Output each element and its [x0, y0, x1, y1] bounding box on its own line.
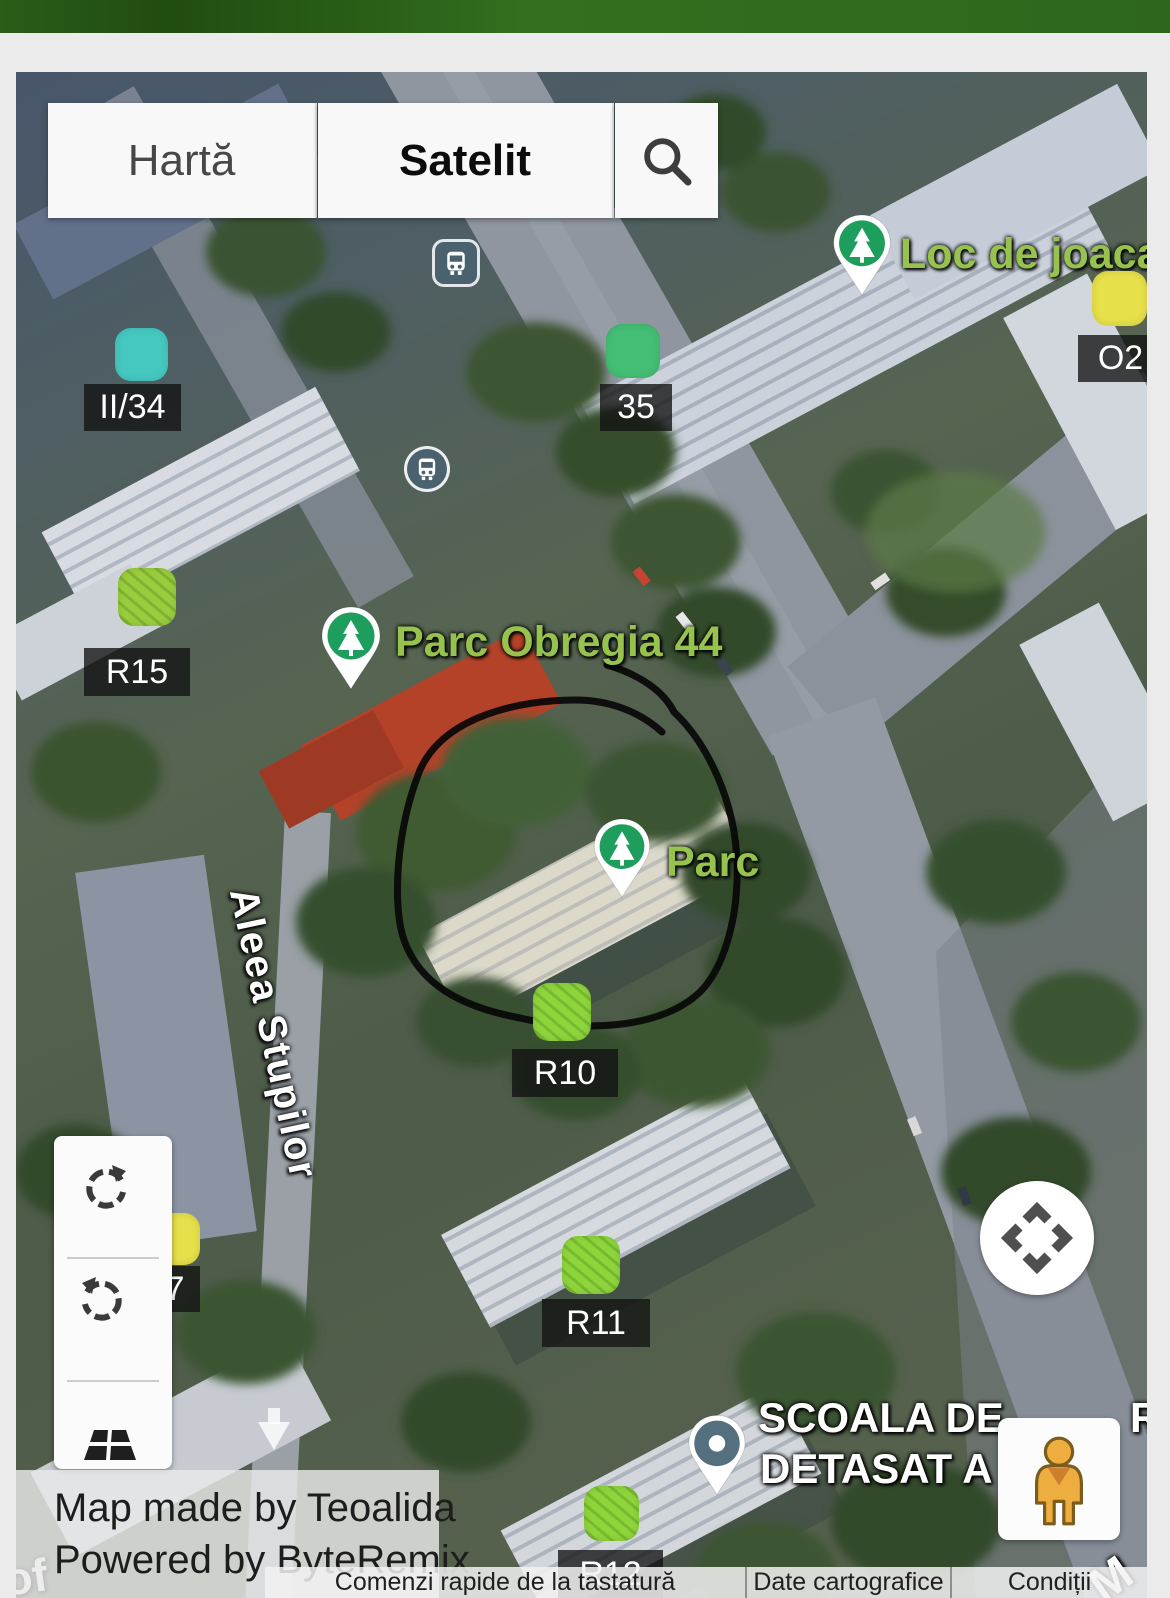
pan-control[interactable]	[980, 1181, 1094, 1295]
tilt-view-icon	[84, 1426, 136, 1466]
tree-pin-icon	[320, 606, 382, 690]
park-obregia-pin[interactable]	[320, 606, 382, 695]
panel-divider	[67, 1380, 159, 1382]
panel-divider	[67, 1257, 159, 1259]
maps-app-page: { "colors": { "header_green": "#2E6B1C",…	[0, 0, 1170, 1598]
rotate-counterclockwise-button[interactable]	[76, 1274, 128, 1326]
terms-link[interactable]: Condiții	[952, 1568, 1147, 1597]
map-data-link[interactable]: Date cartografice	[747, 1568, 950, 1597]
marker-R15-label: R15	[84, 648, 190, 696]
marker-35-label: 35	[600, 384, 672, 431]
attribution-line1: Map made by Teoalida	[54, 1482, 439, 1534]
marker-R12[interactable]	[584, 1486, 639, 1541]
keyboard-shortcuts-link[interactable]: Comenzi rapide de la tastatură	[265, 1568, 745, 1597]
school-label-line2: DETASAT A	[760, 1445, 993, 1493]
school-label-line1-fragment: R	[1130, 1394, 1147, 1442]
tree-pin-icon	[832, 214, 892, 296]
tilt-view-button[interactable]	[84, 1420, 136, 1472]
school-pin-icon	[688, 1412, 746, 1498]
rotate-counterclockwise-icon	[76, 1274, 128, 1326]
marker-O2-label: O2	[1078, 335, 1147, 382]
marker-O2[interactable]	[1092, 271, 1147, 326]
park-pin[interactable]	[592, 818, 652, 903]
playground-pin[interactable]	[832, 214, 892, 301]
rotate-clockwise-icon	[80, 1162, 132, 1214]
marker-R15[interactable]	[118, 568, 176, 626]
marker-R11[interactable]	[562, 1236, 620, 1294]
school-label-line1: SCOALA DE	[758, 1394, 1004, 1442]
marker-R10-label: R10	[512, 1049, 618, 1097]
map-view-control-panel	[54, 1136, 172, 1469]
park-obregia-label[interactable]: Parc Obregia 44	[395, 618, 722, 667]
pan-arrows-icon	[980, 1181, 1094, 1295]
marker-R10[interactable]	[533, 983, 591, 1041]
browser-top-bar	[0, 0, 1170, 33]
satellite-map[interactable]: Hartă Satelit II/34 35 R15 R10 7 R11	[16, 72, 1147, 1598]
school-pin[interactable]	[688, 1412, 746, 1503]
rotate-clockwise-button[interactable]	[80, 1162, 132, 1214]
map-footer-bar: Comenzi rapide de la tastatură Date cart…	[265, 1567, 1147, 1598]
tree-pin-icon	[592, 818, 652, 898]
pegman-icon	[1011, 1431, 1107, 1527]
marker-II34-label: II/34	[84, 384, 181, 431]
pegman-button[interactable]	[998, 1418, 1120, 1540]
park-label[interactable]: Parc	[666, 838, 759, 887]
marker-R11-label: R11	[542, 1299, 650, 1347]
marker-II34[interactable]	[115, 328, 168, 381]
marker-35[interactable]	[606, 324, 660, 378]
street-direction-arrow-head	[258, 1422, 290, 1450]
hand-drawn-circle-annotation	[16, 72, 1147, 1598]
